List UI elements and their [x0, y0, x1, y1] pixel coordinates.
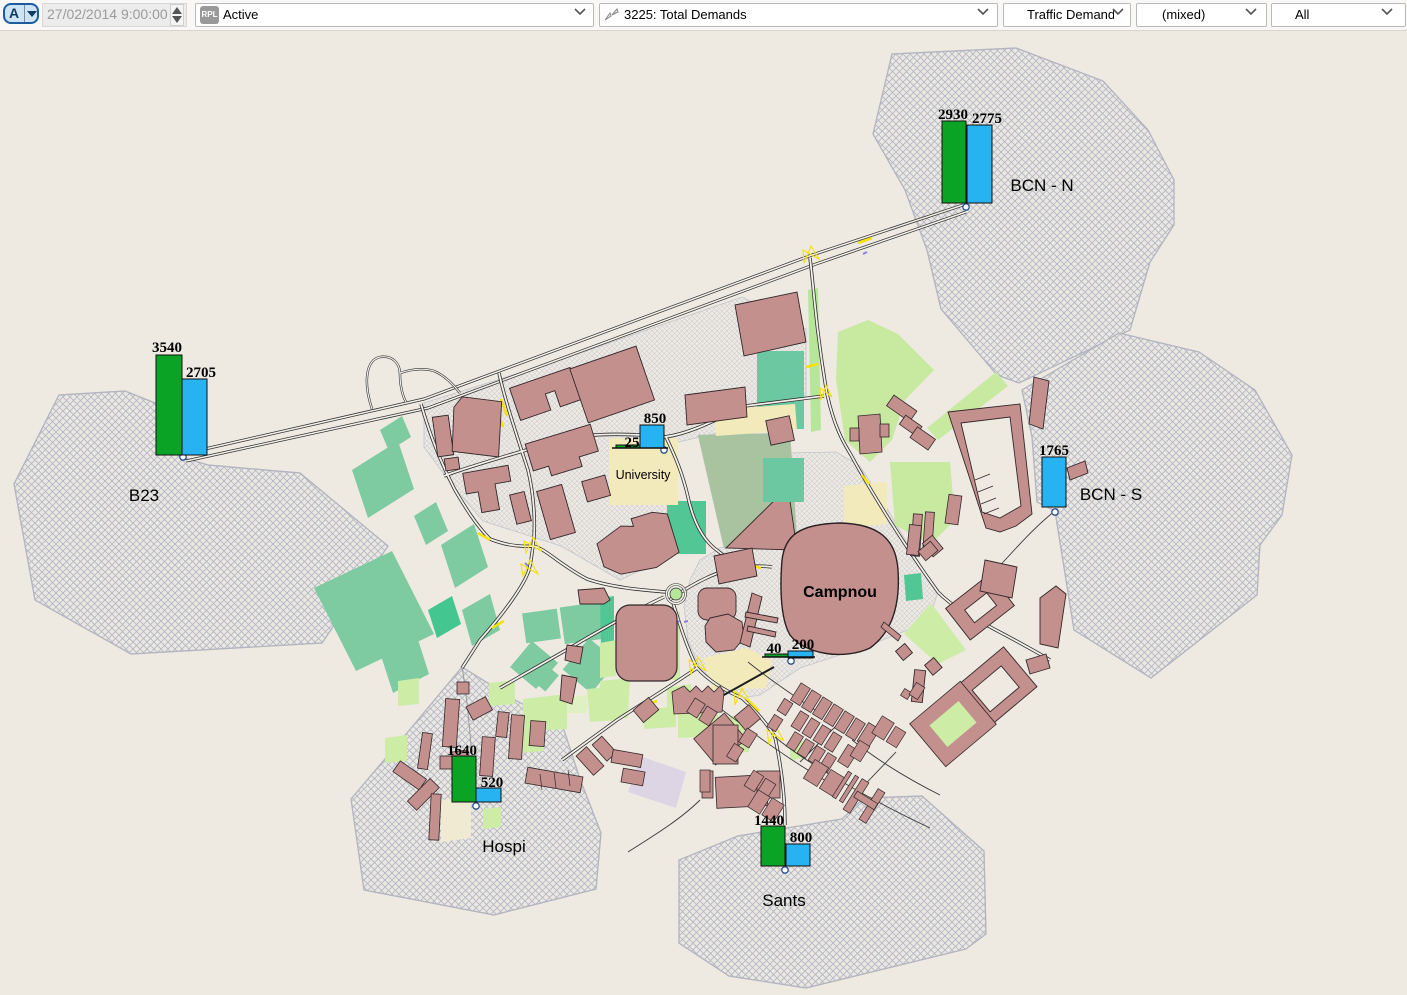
svg-text:520: 520	[481, 775, 504, 791]
svg-text:800: 800	[790, 830, 813, 846]
svg-text:B23: B23	[129, 486, 159, 505]
svg-text:1440: 1440	[754, 813, 784, 829]
svg-text:40: 40	[767, 641, 782, 657]
svg-text:University: University	[616, 468, 672, 482]
svg-text:Sants: Sants	[762, 891, 805, 910]
svg-text:BCN - S: BCN - S	[1080, 485, 1142, 504]
svg-text:1765: 1765	[1039, 443, 1069, 459]
svg-text:3540: 3540	[152, 340, 182, 356]
svg-text:850: 850	[644, 411, 667, 427]
svg-text:200: 200	[792, 637, 815, 653]
svg-text:25: 25	[625, 435, 640, 451]
svg-text:1640: 1640	[447, 743, 477, 759]
svg-text:Campnou: Campnou	[803, 584, 877, 601]
svg-text:BCN - N: BCN - N	[1010, 176, 1073, 195]
svg-text:2930: 2930	[938, 107, 968, 123]
svg-text:2775: 2775	[972, 111, 1002, 127]
svg-text:2705: 2705	[186, 365, 216, 381]
svg-text:Hospi: Hospi	[482, 837, 525, 856]
